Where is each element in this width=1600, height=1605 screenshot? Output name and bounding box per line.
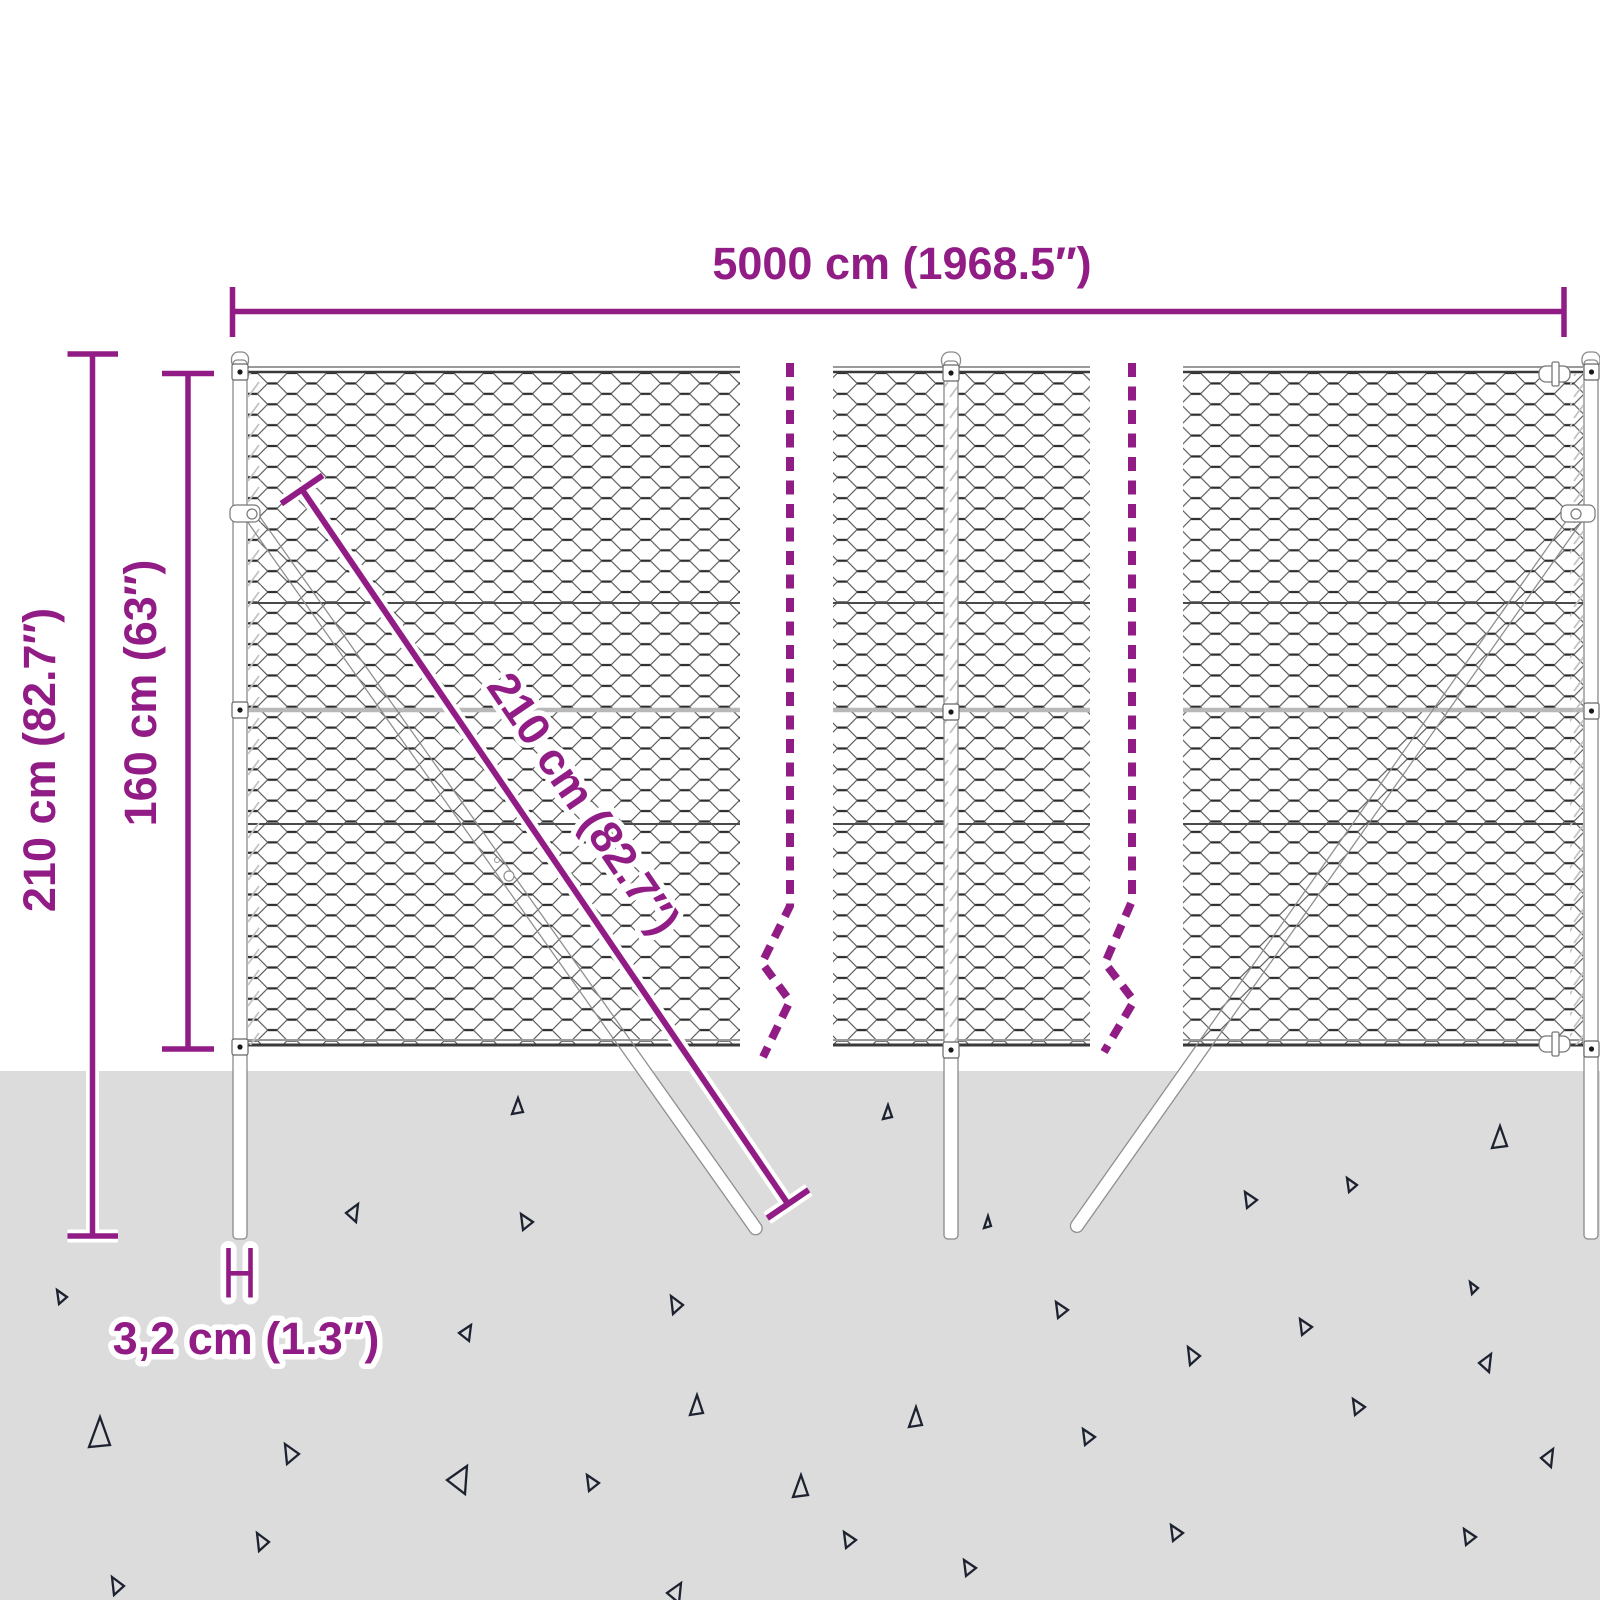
- svg-text:5000 cm (1968.5″): 5000 cm (1968.5″): [712, 238, 1091, 289]
- svg-text:3,2 cm (1.3″): 3,2 cm (1.3″): [113, 1313, 380, 1364]
- svg-text:210 cm (82.7″): 210 cm (82.7″): [14, 608, 65, 912]
- svg-text:160 cm (63″): 160 cm (63″): [115, 560, 166, 827]
